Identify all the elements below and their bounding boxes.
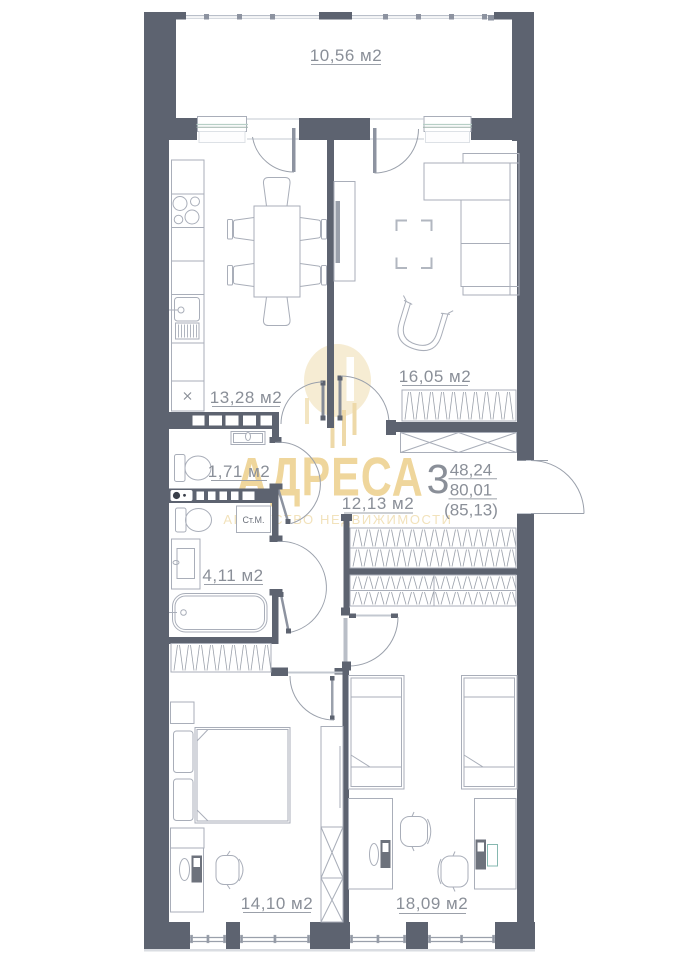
svg-text:1,71 м2: 1,71 м2: [208, 462, 270, 481]
svg-text:16,05 м2: 16,05 м2: [399, 367, 471, 386]
svg-text:18,09 м2: 18,09 м2: [396, 894, 468, 913]
svg-text:(85,13): (85,13): [444, 501, 498, 520]
svg-text:13,28 м2: 13,28 м2: [210, 388, 282, 407]
svg-text:Ст.М.: Ст.М.: [242, 515, 264, 525]
svg-text:14,10 м2: 14,10 м2: [241, 894, 313, 913]
svg-text:4,11 м2: 4,11 м2: [202, 566, 263, 585]
svg-text:3: 3: [427, 456, 450, 502]
svg-text:80,01: 80,01: [450, 481, 493, 500]
svg-text:48,24: 48,24: [450, 461, 493, 480]
svg-text:12,13 м2: 12,13 м2: [342, 494, 414, 513]
svg-text:10,56 м2: 10,56 м2: [310, 46, 382, 65]
